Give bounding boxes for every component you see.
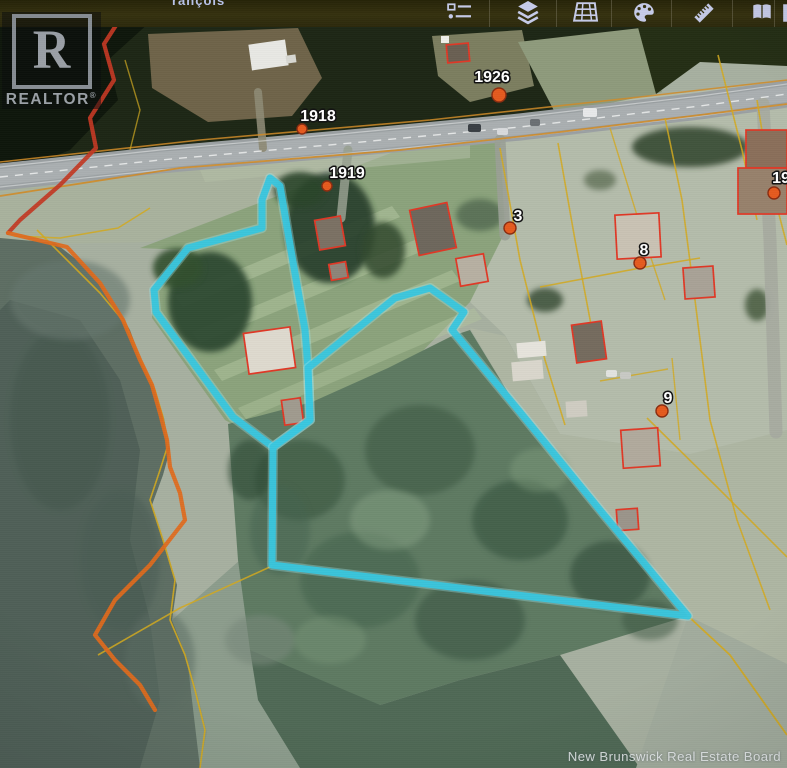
building-red-outline: [446, 43, 469, 63]
partial-icon[interactable]: [776, 1, 787, 25]
building-red-outline: [243, 327, 295, 374]
toolbar-separator: [671, 0, 672, 27]
building: [441, 36, 449, 43]
driveway-trailer: [258, 92, 263, 148]
board-watermark: New Brunswick Real Estate Board: [568, 749, 781, 764]
terrain-patch: [225, 615, 295, 665]
parcel-number-label: 3: [514, 208, 523, 225]
building-red-outline: [456, 254, 488, 286]
vehicle: [620, 372, 631, 379]
terrain-patch: [80, 490, 160, 630]
toolbar-separator: [732, 0, 733, 27]
vehicle: [583, 108, 597, 117]
terrain-patch: [125, 610, 195, 710]
terrain-patch: [228, 440, 272, 500]
toolbar-separator: [556, 0, 557, 27]
map-grid-icon[interactable]: [568, 1, 602, 25]
realtor-logo: R REALTOR®: [2, 12, 101, 109]
registered-mark-icon: ®: [90, 91, 97, 100]
terrain-patch: [456, 199, 504, 231]
vehicle: [497, 128, 508, 135]
place-name-partial: rançois: [172, 0, 225, 8]
building: [516, 341, 546, 358]
building-red-outline: [410, 203, 457, 256]
building: [285, 54, 296, 63]
satellite-map-canvas[interactable]: 19181926191938919: [0, 0, 787, 768]
building-red-outline: [683, 266, 715, 299]
building-red-outline: [615, 213, 661, 259]
building-red-outline: [572, 321, 607, 363]
parcel-number-label: 8: [640, 242, 649, 259]
terrain-patch: [472, 480, 568, 560]
terrain-patch: [350, 490, 430, 550]
realtor-wordmark: REALTOR®: [6, 91, 97, 109]
building: [248, 40, 288, 71]
map-toolbar: [0, 0, 787, 27]
vehicle: [468, 124, 481, 132]
toolbar-separator: [611, 0, 612, 27]
parcel-number-label: 9: [664, 390, 673, 407]
layers-icon[interactable]: [511, 1, 545, 25]
terrain-patch: [361, 222, 405, 278]
building-red-outline: [621, 428, 661, 468]
building-red-outline: [746, 130, 787, 168]
ruler-icon[interactable]: [687, 1, 721, 25]
map-app-window: 19181926191938919 rançois R REALTOR® New…: [0, 0, 787, 768]
terrain-patch: [294, 616, 366, 664]
toolbar-separator: [774, 0, 775, 27]
parcel-number-label: 19: [772, 170, 787, 187]
vehicle: [530, 119, 540, 126]
building: [511, 360, 544, 382]
terrain-patch: [584, 170, 616, 190]
terrain-patch: [632, 127, 748, 167]
palette-icon[interactable]: [627, 1, 661, 25]
toolbar-separator: [489, 0, 490, 27]
parcel-number-label: 1926: [474, 69, 510, 86]
terrain-patch: [365, 405, 475, 495]
parcel-number-label: 1918: [300, 108, 336, 125]
legend-icon[interactable]: [442, 1, 476, 25]
realtor-r-letter: R: [33, 24, 71, 79]
building: [565, 400, 587, 417]
building-red-outline: [329, 262, 349, 281]
parcel-number-label: 1919: [329, 165, 365, 182]
terrain-patch: [10, 330, 110, 510]
realtor-r-box: R: [12, 14, 92, 89]
building-red-outline: [315, 216, 346, 250]
vehicle: [606, 370, 617, 377]
